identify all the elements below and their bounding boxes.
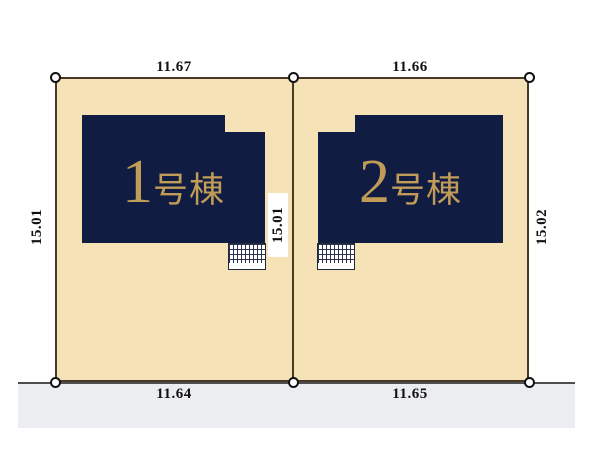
unit-2-suffix: 号棟 bbox=[390, 173, 462, 208]
survey-marker-bottom-right bbox=[524, 377, 535, 388]
survey-marker-bottom-left bbox=[50, 377, 61, 388]
dimension-top-left: 11.67 bbox=[142, 57, 206, 77]
hatch-area-1 bbox=[228, 243, 266, 270]
road-strip bbox=[18, 382, 575, 428]
dimension-side-left: 15.01 bbox=[27, 195, 47, 259]
building-2-label: 2号棟 bbox=[359, 151, 462, 213]
dimension-bottom-left: 11.64 bbox=[142, 384, 206, 404]
dimension-bottom-right: 11.65 bbox=[378, 384, 442, 404]
hatch-area-2 bbox=[317, 243, 355, 270]
survey-marker-top-right bbox=[524, 72, 535, 83]
building-1-footprint: 1号棟 bbox=[82, 115, 265, 243]
unit-1-suffix: 号棟 bbox=[153, 173, 225, 208]
unit-1-number: 1 bbox=[122, 151, 153, 213]
survey-marker-top-left bbox=[50, 72, 61, 83]
hatch-grid-icon bbox=[229, 244, 265, 263]
survey-marker-top-middle bbox=[288, 72, 299, 83]
unit-2-number: 2 bbox=[359, 151, 390, 213]
building-1-label: 1号棟 bbox=[122, 151, 225, 213]
parcel-boundary-line bbox=[292, 77, 294, 382]
site-plan: 1号棟 2号棟 11.67 11.66 11.64 11.65 15.01 15… bbox=[0, 0, 600, 449]
survey-marker-bottom-middle bbox=[288, 377, 299, 388]
hatch-grid-icon bbox=[318, 244, 354, 263]
dimension-side-right: 15.02 bbox=[532, 195, 552, 259]
dimension-top-right: 11.66 bbox=[378, 57, 442, 77]
dimension-side-middle: 15.01 bbox=[268, 193, 288, 257]
building-2-footprint: 2号棟 bbox=[318, 115, 503, 243]
